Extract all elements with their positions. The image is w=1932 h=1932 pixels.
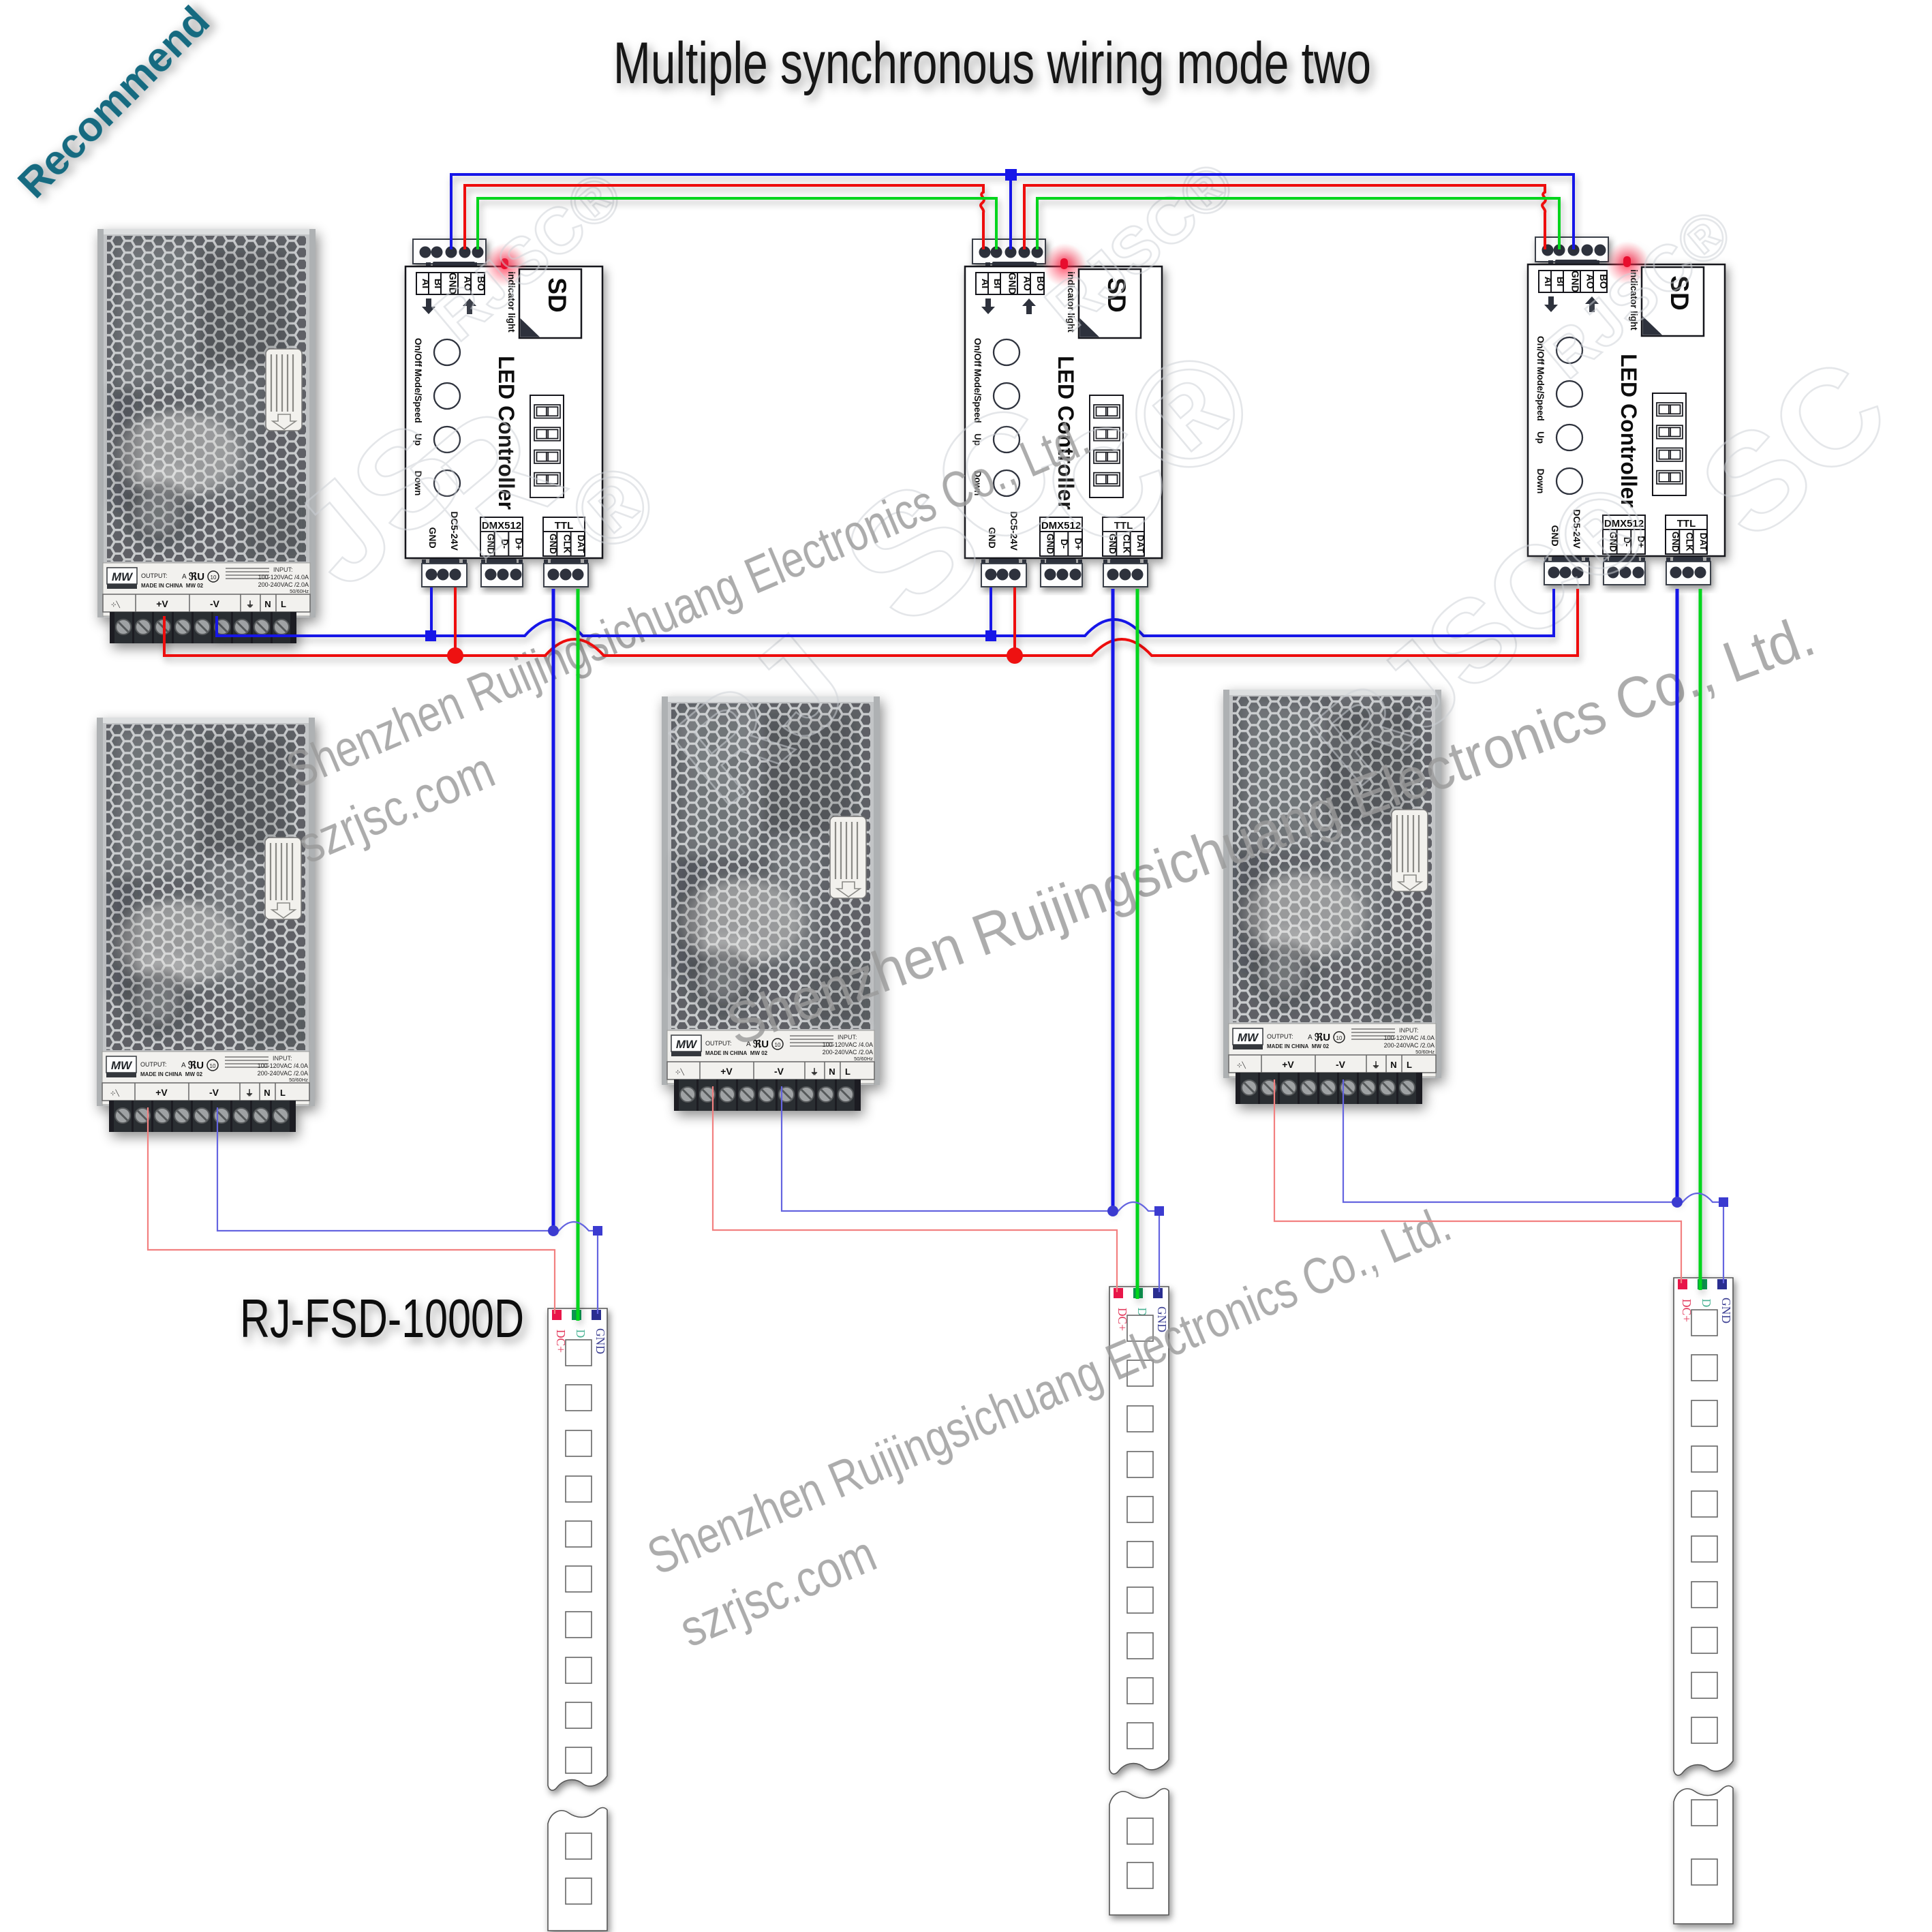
svg-text:A: A bbox=[181, 1062, 186, 1069]
svg-text:N: N bbox=[264, 1088, 270, 1098]
svg-text:TTL: TTL bbox=[1677, 518, 1696, 530]
svg-text:GND: GND bbox=[1007, 273, 1017, 294]
svg-text:MW: MW bbox=[1238, 1031, 1259, 1044]
svg-text:MADE IN CHINA MW 02: MADE IN CHINA MW 02 bbox=[141, 583, 204, 589]
svg-text:GND: GND bbox=[594, 1328, 607, 1354]
svg-text:50/60Hz: 50/60Hz bbox=[289, 1077, 308, 1083]
svg-text:200-240VAC /2.0A: 200-240VAC /2.0A bbox=[258, 1070, 308, 1077]
svg-text:ℜU: ℜU bbox=[1315, 1032, 1330, 1043]
svg-text:A: A bbox=[1308, 1034, 1313, 1041]
svg-text:DAT: DAT bbox=[576, 535, 586, 553]
svg-text:ℜU: ℜU bbox=[189, 571, 204, 583]
svg-text:-V: -V bbox=[774, 1066, 784, 1077]
svg-text:On/Off: On/Off bbox=[972, 338, 983, 367]
svg-text:A: A bbox=[182, 573, 187, 581]
svg-text:OUTPUT:: OUTPUT: bbox=[140, 1061, 167, 1068]
svg-text:+V: +V bbox=[156, 598, 168, 609]
svg-text:CLK: CLK bbox=[1685, 532, 1695, 551]
svg-text:N: N bbox=[829, 1067, 835, 1077]
svg-text:+V: +V bbox=[720, 1066, 733, 1077]
svg-text:INPUT:: INPUT: bbox=[1399, 1027, 1419, 1034]
svg-text:-V: -V bbox=[1336, 1059, 1346, 1070]
svg-text:50/60Hz: 50/60Hz bbox=[290, 588, 309, 594]
svg-text:50/60Hz: 50/60Hz bbox=[1415, 1049, 1435, 1055]
svg-text:MADE IN CHINA MW 02: MADE IN CHINA MW 02 bbox=[1267, 1043, 1330, 1049]
svg-text:GND: GND bbox=[1569, 271, 1580, 292]
svg-text:⏚: ⏚ bbox=[246, 600, 254, 609]
svg-text:+V: +V bbox=[155, 1087, 168, 1098]
svg-text:AI: AI bbox=[420, 279, 431, 289]
svg-text:MW: MW bbox=[676, 1038, 698, 1051]
svg-text:Multiple synchronous wiring mo: Multiple synchronous wiring mode two bbox=[613, 31, 1371, 96]
svg-text:Mode/Speed: Mode/Speed bbox=[1535, 367, 1546, 421]
svg-text:200-240VAC /2.0A: 200-240VAC /2.0A bbox=[1384, 1042, 1435, 1049]
svg-text:L: L bbox=[1407, 1060, 1412, 1070]
svg-text:Up: Up bbox=[1535, 431, 1546, 444]
svg-text:LED Controller: LED Controller bbox=[1616, 354, 1641, 508]
svg-text:MADE IN CHINA MW 02: MADE IN CHINA MW 02 bbox=[140, 1071, 203, 1077]
svg-text:AO: AO bbox=[1022, 276, 1032, 291]
svg-text:OUTPUT:: OUTPUT: bbox=[705, 1040, 732, 1047]
svg-text:-V: -V bbox=[210, 598, 220, 609]
svg-text:DAT: DAT bbox=[1698, 533, 1708, 551]
svg-text:OUTPUT:: OUTPUT: bbox=[1267, 1033, 1293, 1040]
svg-text:⏚: ⏚ bbox=[245, 1088, 254, 1098]
svg-text:L: L bbox=[281, 599, 286, 609]
svg-text:N: N bbox=[264, 599, 271, 609]
svg-text:BI: BI bbox=[992, 279, 1002, 289]
svg-text:INPUT:: INPUT: bbox=[838, 1034, 857, 1041]
svg-text:INPUT:: INPUT: bbox=[273, 1055, 292, 1062]
svg-text:200-240VAC /2.0A: 200-240VAC /2.0A bbox=[823, 1049, 873, 1056]
svg-text:100-120VAC /4.0A: 100-120VAC /4.0A bbox=[823, 1041, 873, 1048]
svg-text:On/Off: On/Off bbox=[413, 338, 423, 367]
svg-text:-V: -V bbox=[209, 1087, 219, 1098]
svg-text:10: 10 bbox=[210, 1063, 216, 1069]
svg-text:100-120VAC /4.0A: 100-120VAC /4.0A bbox=[1384, 1034, 1435, 1041]
svg-text:L: L bbox=[280, 1088, 286, 1098]
svg-text:100-120VAC /4.0A: 100-120VAC /4.0A bbox=[258, 1062, 308, 1069]
svg-text:MW: MW bbox=[111, 1059, 133, 1072]
svg-text:INPUT:: INPUT: bbox=[273, 566, 293, 573]
svg-text:⊹╲: ⊹╲ bbox=[111, 600, 121, 609]
svg-text:RJ-FSD-1000D: RJ-FSD-1000D bbox=[240, 1288, 524, 1349]
svg-text:Down: Down bbox=[1535, 469, 1546, 494]
svg-text:AI: AI bbox=[1542, 277, 1553, 287]
svg-text:L: L bbox=[845, 1067, 850, 1077]
svg-text:100-120VAC /4.0A: 100-120VAC /4.0A bbox=[258, 574, 309, 581]
svg-text:N: N bbox=[1390, 1060, 1396, 1070]
svg-text:BI: BI bbox=[1554, 277, 1565, 287]
svg-text:⏚: ⏚ bbox=[1372, 1060, 1380, 1070]
svg-text:⊹╲: ⊹╲ bbox=[675, 1068, 685, 1076]
svg-text:200-240VAC /2.0A: 200-240VAC /2.0A bbox=[258, 581, 309, 588]
svg-text:AI: AI bbox=[979, 279, 990, 289]
svg-text:50/60Hz: 50/60Hz bbox=[854, 1056, 873, 1062]
svg-text:⊹╲: ⊹╲ bbox=[110, 1089, 120, 1097]
svg-text:+V: +V bbox=[1282, 1059, 1294, 1070]
svg-text:ℜU: ℜU bbox=[188, 1060, 204, 1071]
svg-text:GND: GND bbox=[1670, 532, 1681, 552]
svg-text:MW: MW bbox=[112, 570, 134, 583]
svg-text:10: 10 bbox=[211, 574, 217, 581]
svg-text:⊹╲: ⊹╲ bbox=[1237, 1061, 1246, 1069]
svg-text:OUTPUT:: OUTPUT: bbox=[141, 572, 168, 579]
svg-text:⏚: ⏚ bbox=[810, 1067, 818, 1077]
svg-text:GND: GND bbox=[1719, 1298, 1733, 1323]
svg-text:10: 10 bbox=[1336, 1035, 1343, 1041]
